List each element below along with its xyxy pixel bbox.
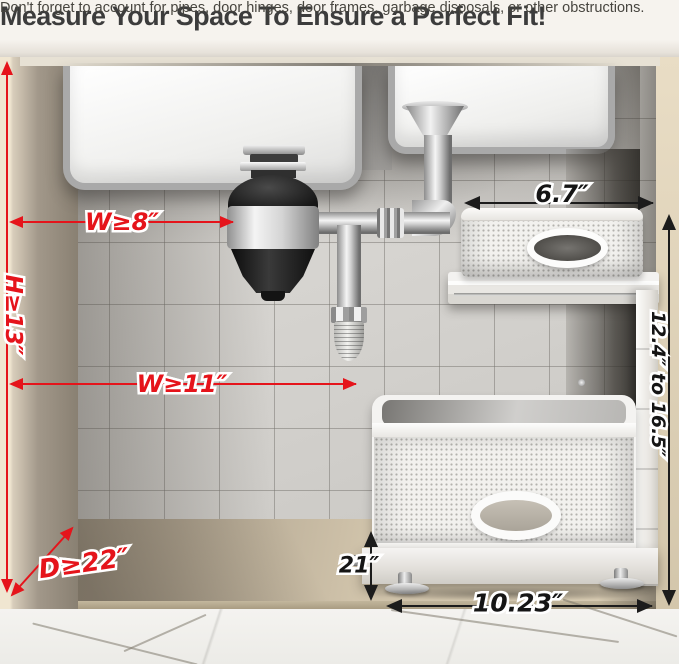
upper-basket-window: [527, 228, 608, 268]
foot-plate-right: [600, 578, 644, 589]
lower-depth-label: 21″: [339, 554, 379, 579]
tee-drop-pipe: [337, 225, 361, 309]
lower-mesh-basket: [372, 395, 636, 562]
arrowhead-down: [364, 585, 378, 601]
horizontal-waste-pipe: [300, 212, 450, 234]
upper-basket-width-label: 6.7″: [535, 180, 588, 208]
arrowhead-left: [9, 216, 23, 228]
arrowhead-left: [9, 378, 23, 390]
left-sink-basin: [63, 66, 362, 190]
arrowhead-up: [1, 61, 13, 75]
upper-basket-lid: [461, 208, 643, 221]
arrowhead-right: [637, 599, 653, 613]
arrowhead-up: [662, 214, 676, 230]
arrowhead-up: [364, 531, 378, 547]
arrowhead-right: [638, 196, 654, 210]
header-banner: Measure Your Space To Ensure a Perfect F…: [0, 0, 679, 57]
upper-mesh-basket: [461, 208, 643, 277]
page-subtitle: Don't forget to account for pipes, door …: [0, 0, 644, 16]
arrowhead-left: [464, 196, 480, 210]
adjustable-height-label: 12.4″ to 16.5″: [647, 311, 669, 457]
under-sink-scene: W≥8″ H≥13″ W≥11″ D≥22″ 6.7″ 12.4″ to 16.…: [0, 57, 679, 664]
panel-screw: [578, 379, 585, 386]
arrowhead-right: [220, 216, 234, 228]
garbage-disposal-tip: [261, 291, 285, 301]
arrowhead-right: [343, 378, 357, 390]
rack-width-label: W≥11″: [137, 370, 228, 398]
upper-shelf-rail: [454, 293, 653, 296]
lower-basket-handle: [471, 491, 561, 540]
cabinet-height-label: H≥13″: [0, 275, 26, 356]
lower-width-label: 10.23″: [473, 589, 563, 618]
garbage-disposal-band: [227, 206, 319, 249]
arrowhead-left: [386, 599, 402, 613]
pipe-coupling-nut: [377, 208, 404, 238]
lower-basket-rim: [372, 423, 636, 437]
arrowhead-down: [662, 590, 676, 606]
infographic: Measure Your Space To Ensure a Perfect F…: [0, 0, 679, 664]
disposal-width-label: W≥8″: [85, 208, 159, 236]
